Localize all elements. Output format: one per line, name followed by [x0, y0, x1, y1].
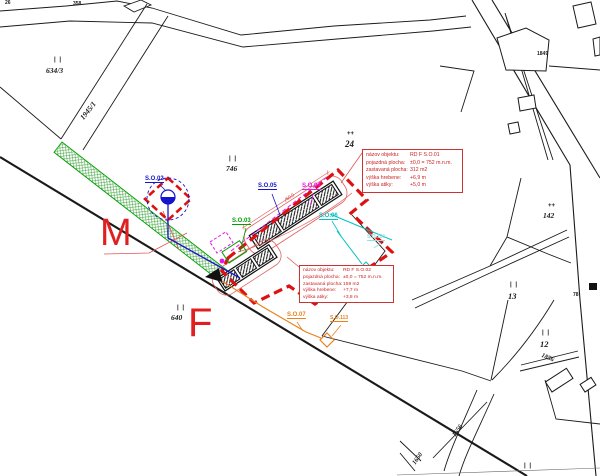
utility-green	[222, 228, 247, 263]
annotation-row: výška hrebene:+6,9 m	[366, 175, 460, 183]
annotation-row: názov objektu:RD F S.O.01	[366, 152, 460, 160]
annotation-row: pojazdná plocha:±0,0 = 752 m.n.m.	[303, 275, 391, 282]
so-label-07: S.O.07	[287, 312, 306, 319]
so-label-06: S.O.06	[319, 213, 338, 220]
parcel-label-13: 13	[508, 291, 517, 301]
annotation-row: pojazdná plocha:±0,0 = 752 m.n.m.	[366, 160, 460, 168]
small-label-1849: 1849	[537, 51, 548, 57]
area-letter-m: M	[100, 212, 132, 255]
annotation-row: výška atiky:+5,0 m	[366, 182, 460, 190]
so-label-03: S.O.03	[232, 218, 251, 225]
parcel-symbol-bottom: | |	[524, 463, 532, 469]
parcel-symbol-640: | |	[177, 305, 185, 311]
site-plan-map[interactable]: | | 634/3 | | 746 ++ 24 ++ 142 | | 13 | …	[0, 0, 600, 476]
annotation-row: výška atiky:+3,8 m	[303, 295, 391, 302]
parcel-label-12: 12	[540, 339, 549, 349]
annotation-box-so02: názov objektu:RD F S.O.02 pojazdná ploch…	[299, 265, 394, 303]
annotation-row: zastavaná plocha:312 m2	[366, 167, 460, 175]
parcel-symbol-24: ++	[347, 131, 354, 137]
parcel-label-640: 640	[171, 313, 182, 322]
so-label-113: S.O.113	[330, 315, 348, 322]
blue-leader	[160, 185, 165, 190]
so-label-121: S.O.121	[367, 234, 385, 241]
small-label-358: 358	[73, 1, 81, 7]
area-letter-f: F	[188, 301, 212, 346]
parcel-symbol-12: | |	[542, 330, 550, 336]
parcel-symbol-634-3: | |	[54, 57, 62, 63]
parcel-symbol-142: ++	[548, 203, 555, 209]
small-label-26: 26	[5, 0, 11, 6]
parcel-symbol-13: | |	[510, 282, 518, 288]
cadastre-roads	[0, 0, 600, 476]
annotation-box-so01: názov objektu:RD F S.O.01 pojazdná ploch…	[362, 149, 463, 193]
so-label-02: S.O.02	[145, 176, 164, 183]
green-verge-strip	[54, 142, 236, 288]
parcel-label-746: 746	[226, 164, 237, 173]
map-linework	[0, 0, 600, 476]
small-label-78: 78	[573, 292, 579, 298]
so-label-05: S.O.05	[258, 183, 277, 190]
so-label-04: S.O.04	[302, 183, 321, 190]
parcel-label-24: 24	[345, 139, 354, 149]
parcel-label-142: 142	[543, 211, 554, 220]
annotation-row: názov objektu:RD F S.O.02	[303, 268, 391, 275]
parcel-label-634-3: 634/3	[46, 66, 63, 75]
parcel-symbol-746: | |	[229, 156, 237, 162]
